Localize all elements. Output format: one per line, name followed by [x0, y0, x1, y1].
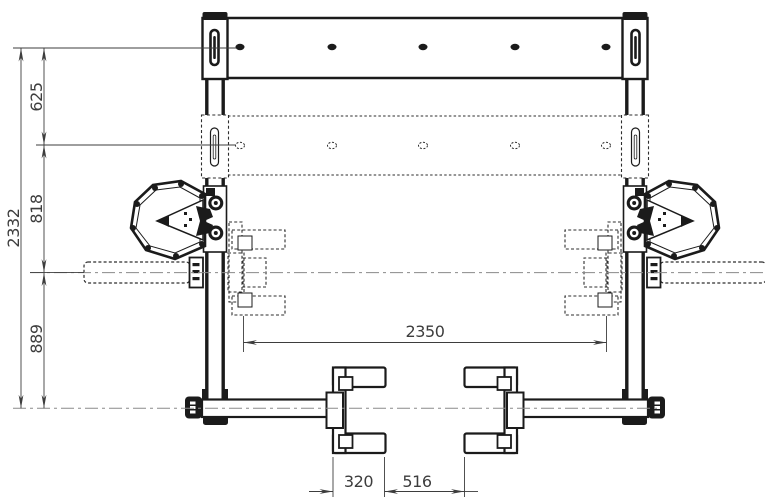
dim-overall-height: 2332: [4, 208, 23, 247]
centerlines: [13, 273, 763, 409]
dim-bracket-width: 320: [344, 472, 374, 491]
dim-top-offset: 625: [27, 82, 46, 111]
dim-bracket-gap: 516: [402, 472, 432, 491]
phantom-beam: [228, 116, 622, 175]
bottom-beam: [185, 397, 665, 426]
right-roller-bracket: [465, 368, 524, 454]
left-phantom-bracket: [228, 222, 285, 315]
left-gearbox: [130, 181, 227, 259]
right-phantom-bracket: [565, 222, 622, 315]
dim-mid-offset: 818: [27, 194, 46, 224]
drawing-page: 2332 625 818 889 2350 320 516: [0, 0, 765, 500]
technical-drawing-canvas: 2332 625 818 889 2350 320 516: [0, 0, 765, 500]
dim-inner-width: 2350: [405, 322, 444, 341]
right-gearbox: [624, 181, 721, 259]
top-beam: [227, 18, 623, 78]
dim-axle-height: 889: [27, 324, 46, 354]
left-roller-bracket: [327, 368, 386, 454]
